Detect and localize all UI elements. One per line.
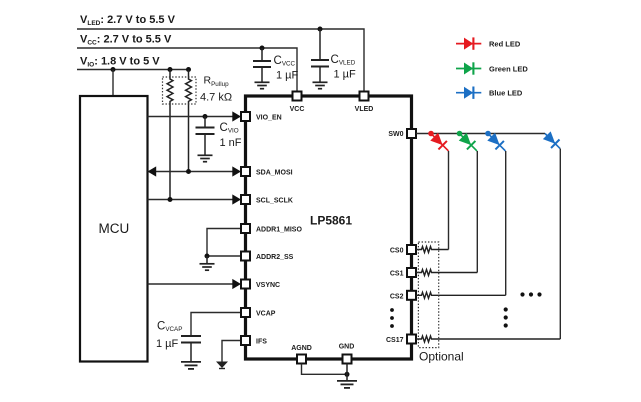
svg-text:CS1: CS1 (390, 271, 404, 278)
svg-text:1 nF: 1 nF (220, 137, 242, 149)
svg-text:VSYNC: VSYNC (256, 282, 280, 289)
svg-text:1 µF: 1 µF (156, 338, 179, 350)
svg-text:Blue LED: Blue LED (489, 89, 523, 98)
svg-text:RPullup: RPullup (204, 75, 230, 88)
svg-text:SCL_SCLK: SCL_SCLK (256, 198, 293, 205)
svg-text:CVCC: CVCC (274, 55, 296, 68)
svg-text:ADDR2_SS: ADDR2_SS (256, 254, 294, 261)
svg-text:CS0: CS0 (390, 248, 404, 255)
svg-text:VCC: VCC (290, 106, 305, 113)
svg-text:CVCAP: CVCAP (157, 321, 182, 334)
svg-text:1 µF: 1 µF (334, 69, 357, 81)
svg-text:4.7 kΩ: 4.7 kΩ (200, 92, 232, 104)
svg-text:IFS: IFS (256, 339, 267, 346)
svg-text:SW0: SW0 (388, 131, 403, 138)
svg-text:ADDR1_MISO: ADDR1_MISO (256, 227, 302, 234)
svg-text:CS2: CS2 (390, 293, 404, 300)
svg-text:Optional: Optional (419, 350, 464, 364)
svg-text:MCU: MCU (99, 221, 130, 236)
svg-text:VCAP: VCAP (256, 311, 276, 318)
svg-text:VLED: VLED (355, 106, 374, 113)
svg-text:1 µF: 1 µF (276, 70, 299, 82)
svg-text:AGND: AGND (291, 345, 312, 352)
svg-text:CS17: CS17 (386, 337, 404, 344)
svg-text:VIO_EN: VIO_EN (256, 115, 282, 122)
svg-text:VCC: 2.7 V to 5.5 V: VCC: 2.7 V to 5.5 V (80, 34, 172, 47)
svg-text:GND: GND (339, 344, 355, 351)
svg-text:LP5861: LP5861 (310, 214, 352, 228)
svg-text:VLED: 2.7 V to 5.5 V: VLED: 2.7 V to 5.5 V (80, 14, 176, 27)
svg-text:Red LED: Red LED (489, 40, 521, 49)
svg-text:VIO: 1.8 V to 5 V: VIO: 1.8 V to 5 V (80, 56, 160, 69)
svg-text:CVIO: CVIO (220, 122, 239, 135)
svg-text:SDA_MOSI: SDA_MOSI (256, 170, 293, 177)
svg-text:Green LED: Green LED (489, 65, 528, 74)
svg-text:CVLED: CVLED (331, 54, 356, 67)
